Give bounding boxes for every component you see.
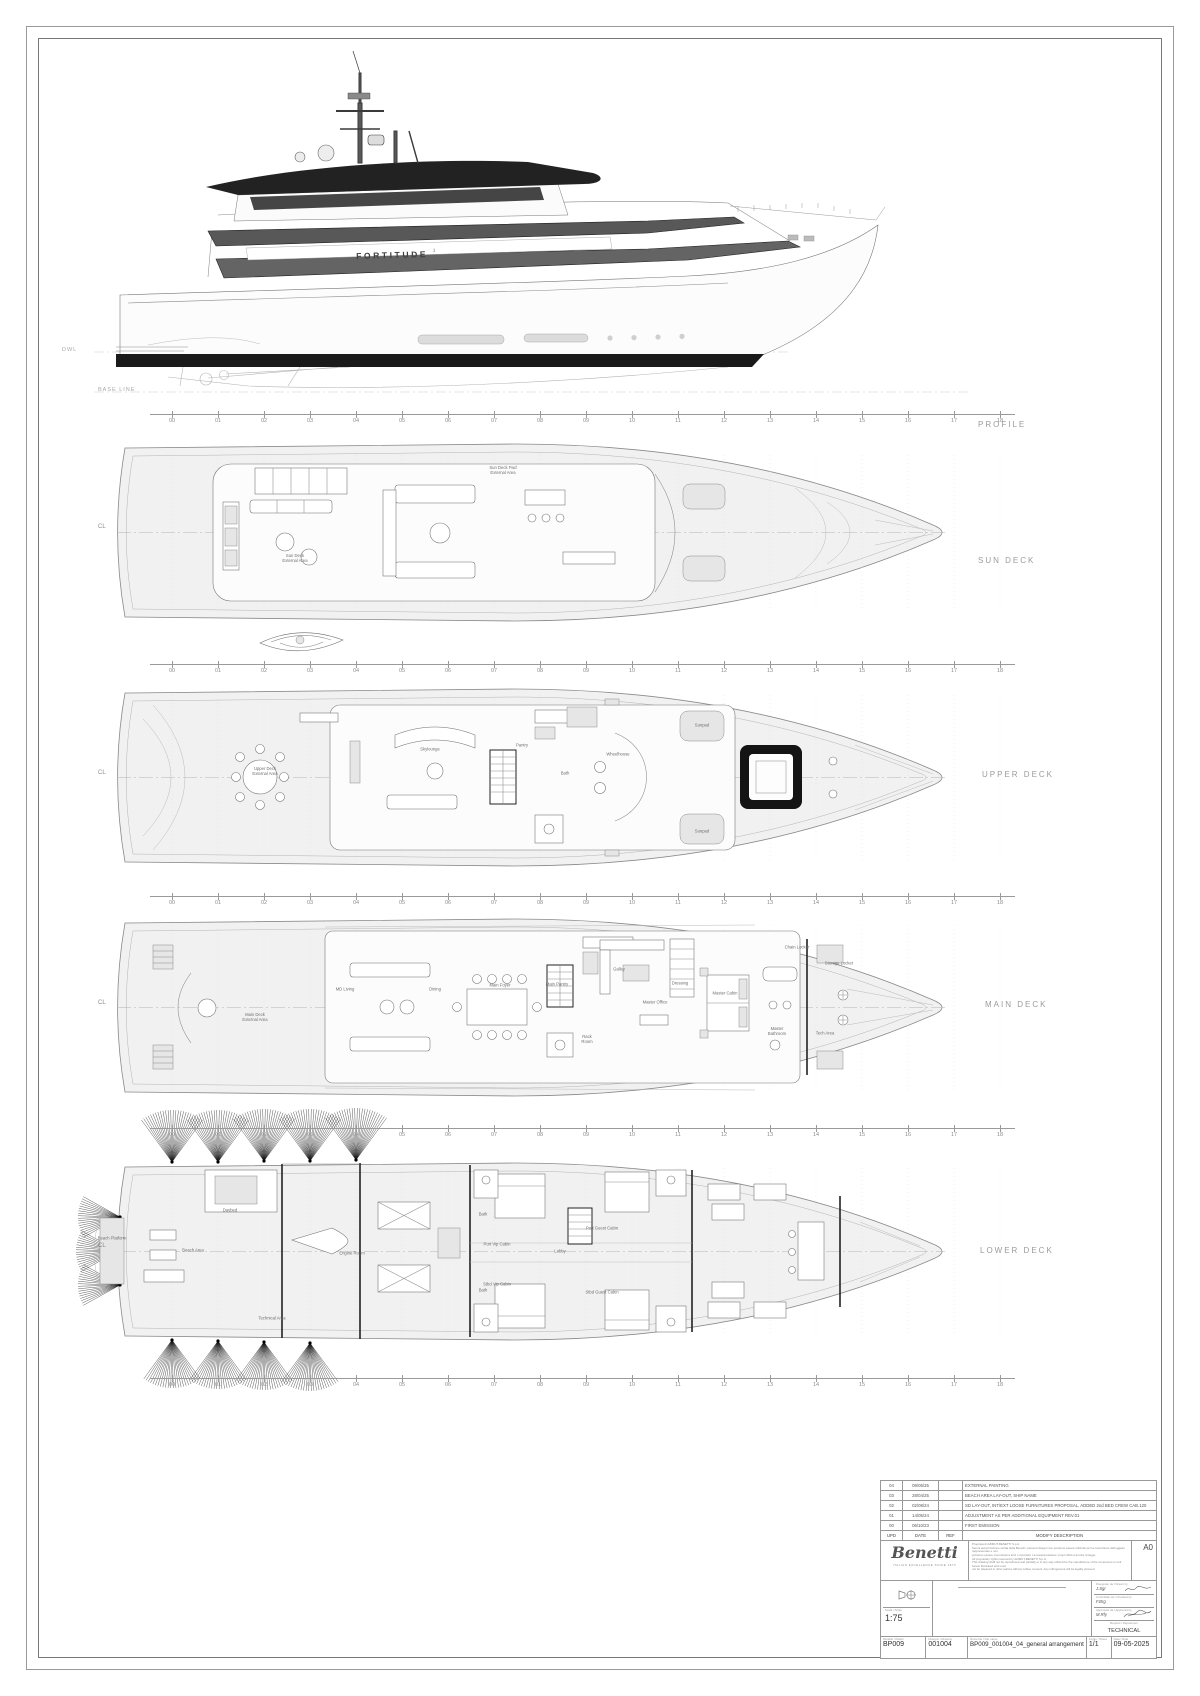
- revision-cell: 01: [881, 1511, 903, 1521]
- room-label: Galley: [613, 966, 625, 971]
- frame-tick: [310, 411, 311, 418]
- frame-number: 04: [353, 1132, 359, 1138]
- frame-tick: [724, 411, 725, 418]
- room-label: Daybed: [223, 1207, 237, 1212]
- frame-number: 18: [997, 1382, 1003, 1388]
- frame-number: 12: [721, 668, 727, 674]
- revision-row: 0114/05/24ADJUSTMENT AS PER ADDITIONAL E…: [881, 1511, 1157, 1521]
- baseline-label: BASE LINE: [98, 387, 135, 393]
- drawn-signature: [1124, 1585, 1152, 1593]
- upper-deck-cl: CL: [98, 770, 106, 776]
- revision-header-row: UPD DATE REF MODIFY DESCRIPTION: [881, 1531, 1157, 1541]
- frame-number: 01: [215, 668, 221, 674]
- frame-tick: [954, 1375, 955, 1382]
- frame-number: 12: [721, 1132, 727, 1138]
- frame-tick: [172, 411, 173, 418]
- frame-number: 14: [813, 900, 819, 906]
- frame-number: 10: [629, 668, 635, 674]
- revision-cell: 00: [881, 1521, 903, 1531]
- frame-number: 15: [859, 1132, 865, 1138]
- revision-col-date: DATE: [903, 1531, 939, 1541]
- lower-deck-title: LOWER DECK: [980, 1246, 1054, 1255]
- mast: [336, 51, 418, 163]
- drawing-title: [933, 1581, 1092, 1636]
- revision-row: 0409/05/25EXTERNAL PAINTING: [881, 1481, 1157, 1491]
- frame-tick: [816, 661, 817, 668]
- frame-tick: [448, 1375, 449, 1382]
- drawn-by-field: Disegnato da / Drawn by J.Sgr: [1094, 1582, 1154, 1595]
- frame-tick: [908, 661, 909, 668]
- frame-tick: [494, 1375, 495, 1382]
- room-label: Main Foyer: [490, 982, 511, 987]
- frame-tick: [862, 661, 863, 668]
- revision-cell: [939, 1521, 963, 1531]
- frame-tick: [724, 1375, 725, 1382]
- sun-deck-structure: [206, 145, 601, 221]
- revision-cell: 04: [881, 1481, 903, 1491]
- frame-number: 04: [353, 418, 359, 424]
- sun-deck-title: SUN DECK: [978, 556, 1035, 565]
- frame-number: 17: [951, 1132, 957, 1138]
- checked-by-value: F.Brg: [1096, 1599, 1106, 1604]
- frame-tick: [770, 661, 771, 668]
- model-value: BP009: [883, 1641, 904, 1648]
- frame-tick: [264, 661, 265, 668]
- frame-number: 05: [399, 900, 405, 906]
- room-label: Bath: [479, 1287, 488, 1292]
- scale-field: Scala / Scale 1:75: [883, 1608, 930, 1635]
- date-field: Data / Date 09-05-2025: [1112, 1637, 1156, 1658]
- frame-number: 13: [767, 900, 773, 906]
- revision-cell: BEACH AREA LAY-OUT, SHIP NAME: [963, 1491, 1157, 1501]
- room-label: Storage Locker: [825, 960, 853, 965]
- revision-cell: 06/10/23: [903, 1521, 939, 1531]
- frame-number: 18: [997, 668, 1003, 674]
- frame-tick: [770, 1375, 771, 1382]
- frame-tick: [172, 661, 173, 668]
- room-label: Sunpad: [695, 828, 709, 833]
- room-label: Lobby: [554, 1248, 565, 1253]
- frame-tick: [264, 893, 265, 900]
- frame-tick: [678, 411, 679, 418]
- frame-number: 10: [629, 1132, 635, 1138]
- frame-tick: [908, 1375, 909, 1382]
- frame-tick: [862, 1375, 863, 1382]
- room-label: Tech Area: [816, 1030, 835, 1035]
- frame-number: 16: [905, 1132, 911, 1138]
- frame-number: 11: [675, 1132, 681, 1138]
- frame-number: 08: [537, 900, 543, 906]
- frame-number: 06: [445, 668, 451, 674]
- frame-ruler-sun-deck: 00010203040506070809101112131415161718: [0, 664, 1200, 680]
- frame-number: 07: [491, 900, 497, 906]
- frame-tick: [632, 1125, 633, 1132]
- frame-number: 13: [767, 668, 773, 674]
- room-label: Stbd Vip Cabin: [483, 1281, 511, 1286]
- frame-number: 09: [583, 1132, 589, 1138]
- revision-row: 0202/08/24SD LAY-OUT, INT/EXT LOOSE FURN…: [881, 1501, 1157, 1511]
- text-line: not be released to other parties without…: [972, 1568, 1128, 1572]
- approved-by-value: M.Rfy: [1096, 1612, 1107, 1617]
- frame-tick: [954, 661, 955, 668]
- frame-number: 05: [399, 418, 405, 424]
- frame-tick: [494, 893, 495, 900]
- frame-tick: [540, 1375, 541, 1382]
- frame-tick: [724, 893, 725, 900]
- projection-and-scale: Scala / Scale 1:75: [881, 1581, 933, 1636]
- drawing-sheet: FORTITUDE 1 DW: [0, 0, 1200, 1696]
- frame-number: 09: [583, 900, 589, 906]
- frame-tick: [356, 1125, 357, 1132]
- frame-tick: [402, 411, 403, 418]
- frame-tick: [770, 411, 771, 418]
- revision-cell: 03: [881, 1491, 903, 1501]
- room-label: Beach Area: [182, 1247, 204, 1252]
- room-label: Sunpad: [695, 722, 709, 727]
- frame-number: 08: [537, 418, 543, 424]
- projection-symbol-icon: [883, 1582, 930, 1608]
- frame-tick: [356, 411, 357, 418]
- frame-tick: [1000, 661, 1001, 668]
- frame-tick: [494, 661, 495, 668]
- frame-number: 06: [445, 1382, 451, 1388]
- room-label: Pantry: [516, 742, 528, 747]
- frame-number: 18: [997, 418, 1003, 424]
- frame-tick: [586, 893, 587, 900]
- room-label: Sun Deck External Area: [282, 553, 307, 564]
- approved-signature: [1122, 1609, 1152, 1619]
- frame-number: 03: [307, 418, 313, 424]
- room-label: Bath: [561, 770, 570, 775]
- revision-cell: 14/05/24: [903, 1511, 939, 1521]
- frame-number: 03: [307, 900, 313, 906]
- frame-number: 17: [951, 900, 957, 906]
- frame-tick: [264, 411, 265, 418]
- frame-ruler-lower-deck: 00010203040506070809101112131415161718: [0, 1378, 1200, 1394]
- frame-tick: [816, 1375, 817, 1382]
- frame-number: 06: [445, 1132, 451, 1138]
- frame-tick: [1000, 1125, 1001, 1132]
- frame-tick: [724, 1125, 725, 1132]
- frame-number: 16: [905, 900, 911, 906]
- room-label: Skylounge: [420, 746, 440, 751]
- revision-cell: 28/04/25: [903, 1491, 939, 1501]
- frame-number: 17: [951, 418, 957, 424]
- frame-number: 08: [537, 1132, 543, 1138]
- revision-table: 0409/05/25EXTERNAL PAINTING0328/04/25BEA…: [880, 1480, 1157, 1541]
- frame-tick: [678, 661, 679, 668]
- revision-cell: FIRST EMISSION: [963, 1521, 1157, 1531]
- frame-number: 06: [445, 418, 451, 424]
- frame-tick: [540, 411, 541, 418]
- frame-tick: [218, 893, 219, 900]
- frame-number: 11: [675, 418, 681, 424]
- revision-col-desc: MODIFY DESCRIPTION: [963, 1531, 1157, 1541]
- frame-tick: [448, 411, 449, 418]
- dwl-label: DWL: [62, 347, 77, 353]
- frame-number: 02: [261, 1132, 267, 1138]
- room-label: Rack Room: [581, 1034, 592, 1045]
- frame-number: 05: [399, 668, 405, 674]
- room-label: Main Deck External Area: [242, 1012, 267, 1023]
- frame-tick: [356, 1375, 357, 1382]
- profile-view-drawing: FORTITUDE 1: [88, 45, 988, 407]
- signature-column: Disegnato da / Drawn by J.Sgr Controllat…: [1092, 1581, 1156, 1636]
- frame-number: 01: [215, 1132, 221, 1138]
- room-label: Main Pantry: [546, 981, 568, 986]
- revision-cell: [939, 1501, 963, 1511]
- room-label: Upper Deck External Area: [252, 766, 277, 777]
- underwater-gear: [168, 367, 728, 387]
- drawing-number-field: Disegno / Drawing 001004: [926, 1637, 968, 1658]
- frame-tick: [954, 411, 955, 418]
- revision-cell: EXTERNAL PAINTING: [963, 1481, 1157, 1491]
- frame-number: 14: [813, 668, 819, 674]
- frame-number: 10: [629, 418, 635, 424]
- frame-tick: [632, 1375, 633, 1382]
- drawing-number-value: 001004: [928, 1641, 951, 1648]
- frame-number: 02: [261, 1382, 267, 1388]
- frame-tick: [264, 1125, 265, 1132]
- frame-tick: [678, 893, 679, 900]
- revision-cell: [939, 1511, 963, 1521]
- frame-tick: [954, 893, 955, 900]
- frame-tick: [218, 411, 219, 418]
- date-value: 09-05-2025: [1114, 1641, 1150, 1648]
- frame-number: 14: [813, 418, 819, 424]
- frame-tick: [448, 893, 449, 900]
- frame-number: 11: [675, 1382, 681, 1388]
- frame-tick: [816, 1125, 817, 1132]
- file-name-value: BP009_001004_04_general arrangement: [970, 1641, 1084, 1648]
- frame-number: 04: [353, 1382, 359, 1388]
- room-label: Dressing: [672, 980, 689, 985]
- frame-number: 14: [813, 1382, 819, 1388]
- frame-tick: [540, 1125, 541, 1132]
- frame-tick: [218, 1125, 219, 1132]
- frame-tick: [402, 893, 403, 900]
- department-value: TECHNICAL: [1094, 1628, 1154, 1634]
- room-label: MD Living: [336, 986, 355, 991]
- frame-number: 00: [169, 668, 175, 674]
- frame-number: 16: [905, 1382, 911, 1388]
- frame-tick: [908, 893, 909, 900]
- frame-number: 04: [353, 668, 359, 674]
- frame-number: 18: [997, 900, 1003, 906]
- revision-cell: 02: [881, 1501, 903, 1511]
- frame-number: 00: [169, 418, 175, 424]
- frame-tick: [632, 893, 633, 900]
- revision-cell: ADJUSTMENT AS PER ADDITIONAL EQUIPMENT R…: [963, 1511, 1157, 1521]
- frame-number: 08: [537, 668, 543, 674]
- brand-tagline: ITALIAN EXCELLENCE SINCE 1873: [883, 1563, 966, 1567]
- frame-tick: [586, 1375, 587, 1382]
- frame-tick: [402, 1375, 403, 1382]
- frame-number: 03: [307, 1382, 313, 1388]
- frame-number: 01: [215, 1382, 221, 1388]
- frame-tick: [1000, 893, 1001, 900]
- frame-number: 15: [859, 668, 865, 674]
- frame-number: 05: [399, 1132, 405, 1138]
- frame-tick: [632, 411, 633, 418]
- frame-tick: [908, 1125, 909, 1132]
- frame-number: 02: [261, 668, 267, 674]
- frame-number: 12: [721, 1382, 727, 1388]
- frame-tick: [310, 1375, 311, 1382]
- frame-number: 15: [859, 1382, 865, 1388]
- room-label: Port Guest Cabin: [586, 1225, 618, 1230]
- title-divider: [958, 1587, 1066, 1588]
- frame-tick: [1000, 1375, 1001, 1382]
- frame-tick: [310, 661, 311, 668]
- checked-by-field: Controllato da / Checked by F.Brg: [1094, 1595, 1154, 1608]
- frame-number: 07: [491, 418, 497, 424]
- frame-number: 08: [537, 1382, 543, 1388]
- upper-deck-title: UPPER DECK: [982, 770, 1054, 779]
- frame-tick: [402, 661, 403, 668]
- frame-tick: [586, 411, 587, 418]
- revision-cell: 09/05/25: [903, 1481, 939, 1491]
- brand-logo: Benetti ITALIAN EXCELLENCE SINCE 1873: [881, 1541, 969, 1580]
- lower-deck-labels: Beach PlatformBeach AreaDaybedEngine Roo…: [40, 1110, 955, 1392]
- frame-tick: [816, 411, 817, 418]
- frame-number: 01: [215, 900, 221, 906]
- department-label: Reparto / Department: [1094, 1622, 1154, 1625]
- frame-number: 12: [721, 900, 727, 906]
- main-deck-cl: CL: [98, 1000, 106, 1006]
- frame-number: 17: [951, 668, 957, 674]
- frame-ruler-main-deck: 00010203040506070809101112131415161718: [0, 1128, 1200, 1144]
- frame-tick: [218, 1375, 219, 1382]
- sun-deck-cl: CL: [98, 524, 106, 530]
- frame-number: 16: [905, 668, 911, 674]
- frame-tick: [862, 1125, 863, 1132]
- scale-value: 1:75: [885, 1613, 928, 1623]
- frame-tick: [908, 411, 909, 418]
- approved-by-field: Approvato da / Approved by M.Rfy: [1094, 1608, 1154, 1621]
- department-field: Reparto / Department TECHNICAL: [1094, 1621, 1154, 1635]
- revision-col-upd: UPD: [881, 1531, 903, 1541]
- frame-number: 13: [767, 418, 773, 424]
- frame-tick: [954, 1125, 955, 1132]
- sheet-format: A0: [1132, 1541, 1156, 1580]
- frame-number: 10: [629, 1382, 635, 1388]
- frame-tick: [862, 411, 863, 418]
- frame-tick: [402, 1125, 403, 1132]
- ship-name: FORTITUDE: [356, 249, 428, 261]
- frame-number: 01: [215, 418, 221, 424]
- frame-tick: [678, 1125, 679, 1132]
- frame-number: 09: [583, 418, 589, 424]
- frame-number: 03: [307, 668, 313, 674]
- frame-number: 03: [307, 1132, 313, 1138]
- frame-tick: [218, 661, 219, 668]
- frame-number: 07: [491, 668, 497, 674]
- frame-number: 11: [675, 668, 681, 674]
- frame-tick: [770, 893, 771, 900]
- frame-number: 00: [169, 900, 175, 906]
- brand-name: Benetti: [883, 1545, 966, 1561]
- frame-number: 14: [813, 1132, 819, 1138]
- frame-number: 10: [629, 900, 635, 906]
- frame-number: 06: [445, 900, 451, 906]
- frame-number: 07: [491, 1382, 497, 1388]
- frame-number: 00: [169, 1382, 175, 1388]
- frame-number: 15: [859, 418, 865, 424]
- room-label: Stbd Guest Cabin: [585, 1289, 618, 1294]
- frame-ruler-profile: 00010203040506070809101112131415161718: [0, 414, 1200, 430]
- frame-number: 16: [905, 418, 911, 424]
- frame-tick: [540, 661, 541, 668]
- frame-tick: [770, 1125, 771, 1132]
- legal-disclaimer: Proprieta di AZIMUT-BENETTI S.p.A.Senza …: [969, 1541, 1132, 1580]
- room-label: Master Office: [643, 999, 668, 1004]
- sheet-number-field: Foglio / Sheet 1/1: [1087, 1637, 1112, 1658]
- frame-tick: [356, 893, 357, 900]
- frame-tick: [310, 893, 311, 900]
- frame-number: 00: [169, 1132, 175, 1138]
- frame-number: 09: [583, 668, 589, 674]
- frame-number: 04: [353, 900, 359, 906]
- frame-number: 07: [491, 1132, 497, 1138]
- room-label: Chain Locker: [785, 944, 810, 949]
- frame-number: 12: [721, 418, 727, 424]
- frame-tick: [264, 1375, 265, 1382]
- frame-tick: [172, 1375, 173, 1382]
- document-id-row: Modello / Model BP009 Disegno / Drawing …: [880, 1637, 1157, 1659]
- frame-number: 05: [399, 1382, 405, 1388]
- room-label: Master Cabin: [713, 990, 738, 995]
- frame-tick: [494, 411, 495, 418]
- revision-cell: [939, 1481, 963, 1491]
- revision-col-ref: REF: [939, 1531, 963, 1541]
- room-label: Beach Platform: [98, 1235, 127, 1240]
- frame-tick: [310, 1125, 311, 1132]
- frame-tick: [172, 1125, 173, 1132]
- room-label: Engine Room: [339, 1250, 364, 1255]
- main-deck-labels: Main Deck External AreaMD LivingDiningMa…: [95, 905, 955, 1110]
- lower-deck-cl: CL: [98, 1243, 106, 1249]
- revision-row: 0328/04/25BEACH AREA LAY-OUT, SHIP NAME: [881, 1491, 1157, 1501]
- frame-tick: [678, 1375, 679, 1382]
- scale-label: Scala / Scale: [885, 1609, 928, 1612]
- room-label: Sun Deck Fwd External Area: [489, 465, 516, 476]
- room-label: Wheelhouse: [606, 751, 629, 756]
- drawn-by-value: J.Sgr: [1096, 1586, 1106, 1591]
- frame-tick: [540, 893, 541, 900]
- frame-number: 09: [583, 1382, 589, 1388]
- sun-deck-labels: Sun Deck External AreaSun Deck Fwd Exter…: [95, 430, 955, 670]
- upper-deck-labels: Upper Deck External AreaSkyloungePantryB…: [95, 675, 955, 880]
- frame-number: 15: [859, 900, 865, 906]
- frame-number: 02: [261, 418, 267, 424]
- main-deck-title: MAIN DECK: [985, 1000, 1047, 1009]
- frame-number: 18: [997, 1132, 1003, 1138]
- frame-number: 11: [675, 900, 681, 906]
- revision-cell: 02/08/24: [903, 1501, 939, 1511]
- revision-cell: [939, 1491, 963, 1501]
- frame-ruler-upper-deck: 00010203040506070809101112131415161718: [0, 896, 1200, 912]
- revision-cell: SD LAY-OUT, INT/EXT LOOSE FURNITURES PRO…: [963, 1501, 1157, 1511]
- frame-tick: [862, 893, 863, 900]
- frame-tick: [172, 893, 173, 900]
- room-label: Bath: [479, 1211, 488, 1216]
- frame-number: 13: [767, 1132, 773, 1138]
- revision-row: 0006/10/23FIRST EMISSION: [881, 1521, 1157, 1531]
- frame-tick: [448, 661, 449, 668]
- room-label: Dining: [429, 986, 441, 991]
- frame-number: 17: [951, 1382, 957, 1388]
